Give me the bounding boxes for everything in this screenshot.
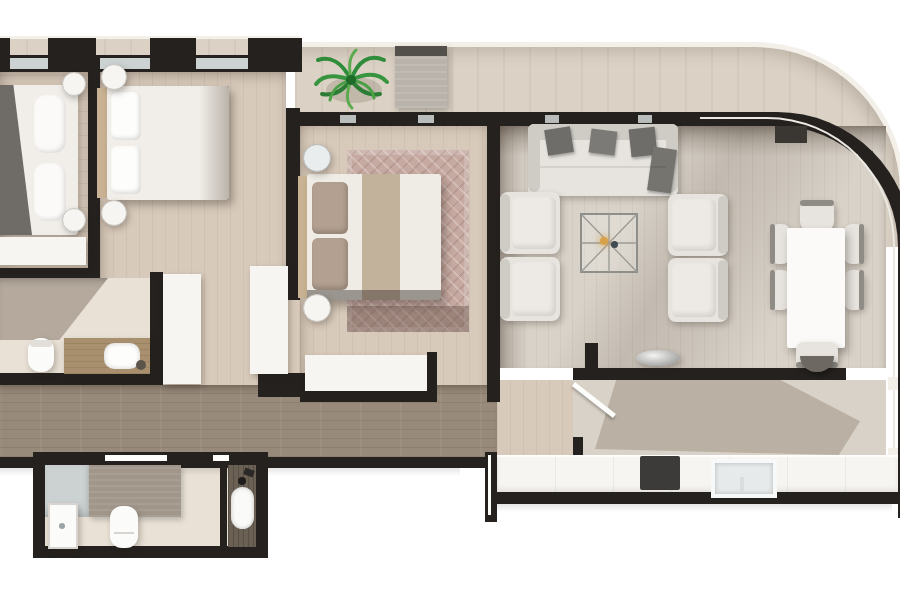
entry-door-leaf-line — [488, 455, 491, 515]
candle — [600, 237, 608, 245]
window-pier — [248, 38, 302, 72]
toilet-seat-line — [114, 532, 134, 534]
headboard-master — [298, 176, 307, 298]
nightstand-bedroom1-bottom — [62, 208, 86, 232]
palm-plant-graphic — [312, 48, 390, 112]
right-wall-window-notch — [888, 377, 898, 390]
armchair-right-2 — [668, 258, 728, 322]
breakfast-bar-pillar — [585, 343, 598, 370]
nightstand-bedroom1-top — [62, 72, 86, 96]
window-mullion-gap — [418, 115, 434, 123]
decorative-bowl — [636, 350, 680, 366]
window-mullion-gap — [340, 115, 356, 123]
palm-plant — [312, 48, 390, 112]
chair-back — [770, 270, 775, 310]
bed1-pillow — [34, 163, 66, 221]
shower-tray-bathroom2 — [48, 503, 78, 549]
window-pier — [150, 38, 196, 72]
faucet-bathroom2 — [238, 477, 246, 485]
bed-master — [307, 174, 441, 300]
wall-bedroom1-bottom — [0, 268, 100, 278]
armchair-back — [718, 260, 728, 320]
coffee-table-lattice — [580, 213, 638, 273]
coffee-table — [580, 213, 638, 273]
bed2-foot-shade — [199, 86, 229, 200]
armchair-back — [500, 194, 510, 252]
dining-chair-top — [800, 200, 834, 230]
closet-bedroom2-left — [163, 274, 201, 384]
bed1-blanket — [0, 85, 32, 235]
sofa-throw-pillow — [544, 126, 574, 156]
vanity-bathroom2 — [228, 465, 256, 547]
dining-chair-right-1 — [844, 224, 864, 264]
sofa-arm — [528, 126, 540, 192]
sofa-seat-seam — [540, 166, 666, 168]
toilet-bathroom1 — [28, 338, 54, 372]
lounger-headrest — [395, 46, 447, 56]
armchair-back — [718, 196, 728, 254]
armchair-cushion — [512, 262, 556, 316]
armchair-cushion — [672, 263, 716, 317]
kitchen-cabinet-run — [497, 455, 898, 492]
window-pier — [0, 38, 10, 72]
wall-junction-block — [258, 373, 305, 397]
armchair-back — [500, 259, 510, 319]
chair-back — [800, 200, 834, 206]
entry-door-pillar — [485, 452, 497, 522]
chair-back — [859, 224, 864, 264]
bed2-pillow — [111, 146, 141, 194]
bed-master-pillow — [312, 182, 348, 234]
dining-table — [787, 228, 845, 348]
bathroom2-door-threshold — [105, 455, 167, 461]
armchair-right-1 — [668, 194, 728, 256]
dresser-master — [305, 355, 427, 391]
table-decor-item — [611, 241, 618, 248]
kitchen-sink — [711, 459, 777, 498]
breakfast-bar-wall — [573, 368, 846, 380]
faucet-bathroom1 — [136, 360, 146, 370]
bathroom2-wall-right — [256, 452, 268, 558]
armchair-cushion — [512, 197, 556, 249]
wall-bathroom1-right — [150, 272, 163, 385]
wall-bathroom1-bottom — [0, 373, 163, 385]
chair-back — [770, 224, 775, 264]
toilet-tank — [30, 340, 52, 347]
window-mullion-gap — [545, 115, 559, 123]
sofa — [528, 124, 678, 196]
bed-bedroom2 — [107, 86, 229, 200]
bed1-pillow — [34, 95, 66, 153]
wall-pillar-living-top-right — [775, 126, 807, 143]
bed-master-pillow — [312, 238, 348, 290]
wardrobe-bedroom2 — [250, 266, 288, 374]
bathroom2-wall-left — [33, 452, 45, 558]
nightstand-master-top — [303, 144, 331, 172]
nightstand-bedroom2-top — [101, 64, 127, 90]
wall-master-bottom-stub — [427, 352, 437, 402]
wall-kitchen-bottom — [497, 492, 898, 504]
dining-chair-right-2 — [844, 270, 864, 310]
armchair-left-2 — [500, 257, 560, 321]
floor-plan-canvas — [0, 0, 900, 600]
sofa-throw-pillow — [589, 129, 618, 156]
bed2-pillow — [111, 92, 141, 140]
sun-lounger — [395, 46, 447, 108]
window-mullion-gap — [638, 115, 652, 123]
nightstand-bedroom2-bottom — [101, 200, 127, 226]
sink-bathroom2 — [231, 487, 254, 529]
bathroom2-inner-wall — [220, 465, 227, 547]
armchair-left-1 — [500, 192, 560, 254]
sink-bathroom1 — [104, 343, 140, 369]
chair-back — [859, 270, 864, 310]
sideboard-bedroom1 — [0, 237, 86, 265]
armchair-cushion — [672, 199, 716, 251]
wall-master-living — [487, 112, 500, 402]
sink-faucet — [740, 477, 744, 493]
window-glass — [196, 58, 248, 69]
bed-master-runner — [362, 174, 400, 300]
vanity-bathroom1 — [64, 338, 150, 374]
window-glass — [10, 58, 48, 69]
headboard-bedroom2 — [97, 88, 107, 198]
nightstand-master-bottom — [303, 294, 331, 322]
cooktop — [640, 456, 680, 490]
rug-master-dark-band — [347, 306, 469, 332]
wall-master-bottom — [300, 390, 435, 402]
vanity2-accessory — [243, 468, 255, 478]
bathroom2-door-threshold — [213, 455, 229, 461]
shower-drain — [59, 523, 65, 529]
toilet-bathroom2 — [110, 506, 138, 548]
